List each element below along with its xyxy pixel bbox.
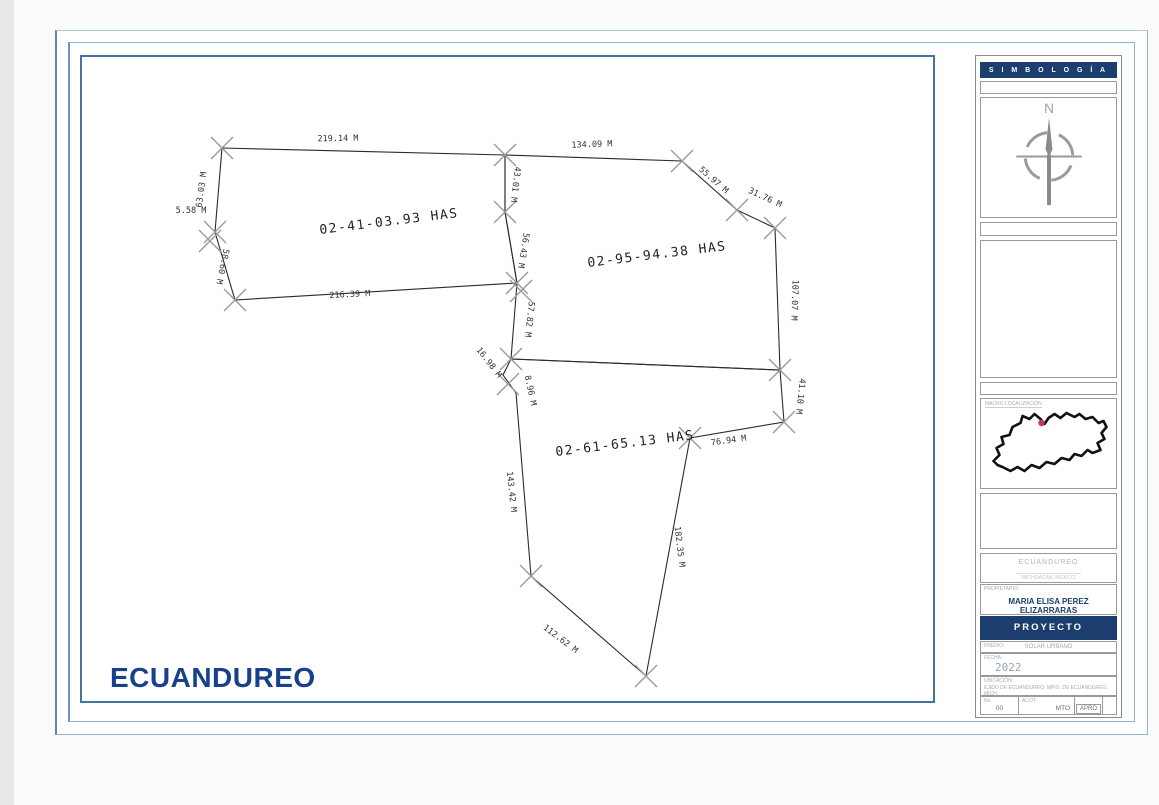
michoacan-map <box>981 407 1118 487</box>
edge-length-label: 8.96 M <box>522 375 538 407</box>
parcel-1-area-label: 02-41-03.93 HAS <box>319 206 460 238</box>
edge-length-label: 5.58 M <box>176 206 207 216</box>
year-value: 2022 <box>995 661 1116 674</box>
edge-measurements: 219.14 M 63.03 M 5.58 M 58.60 M 216.39 M… <box>176 134 807 656</box>
north-arrow-icon: N <box>1003 98 1095 215</box>
sidebar-spacer-row <box>980 222 1117 236</box>
parcel-3-area-label: 02-61-65.13 HAS <box>555 428 696 460</box>
edge-length-label: 107.07 M <box>788 279 799 320</box>
cell-approval-value: APRO <box>1076 704 1101 714</box>
cell-number-value: 00 <box>981 705 1018 712</box>
cell-units-value: MTO <box>1019 705 1074 712</box>
revision-cells-row: No. 00 ACOT. MTO APRO <box>980 696 1117 715</box>
north-letter: N <box>1043 100 1053 116</box>
macro-location-panel: MACRO LOCALIZACIÓN <box>980 398 1117 489</box>
project-band: PROYECTO <box>980 616 1117 640</box>
owner-name: MARIA ELISA PEREZ ELIZARRARAS <box>981 597 1116 615</box>
edge-length-label: 56.43 M <box>515 232 530 269</box>
sidebar-empty-panel <box>980 493 1117 549</box>
edge-length-label: 112.62 M <box>541 623 580 656</box>
year-row: FECHA: 2022 <box>980 653 1117 676</box>
predio-label: PREDIO: <box>984 643 1005 649</box>
organization-subtitle: MICHOACÁN, MÉXICO <box>1016 573 1081 581</box>
owner-panel: PROPIETARIO: MARIA ELISA PEREZ ELIZARRAR… <box>980 584 1117 615</box>
sidebar-spacer-row <box>980 382 1117 395</box>
parcel-2-area-label: 02-95-94.38 HAS <box>587 239 728 271</box>
simbologia-header: S I M B O L O G Í A <box>980 62 1117 78</box>
edge-length-label: 143.42 M <box>504 471 518 513</box>
edge-length-label: 58.60 M <box>213 248 230 285</box>
organization-panel: ECUANDUREO MICHOACÁN, MÉXICO <box>980 553 1117 583</box>
edge-length-label: 219.14 M <box>317 134 358 145</box>
edge-length-label: 182.35 M <box>672 526 687 568</box>
cell-units: ACOT. MTO <box>1019 697 1075 714</box>
sidebar-empty-panel <box>980 240 1117 378</box>
location-marker-dot <box>1038 420 1044 426</box>
edge-length-label: 16.98 M <box>474 346 504 380</box>
north-arrow-panel: N <box>980 97 1117 218</box>
organization-name: ECUANDUREO <box>981 559 1116 566</box>
edge-length-label: 55.97 M <box>697 165 731 196</box>
edge-length-label: 134.09 M <box>571 139 612 150</box>
predio-row: PREDIO: SOLAR URBANO <box>980 641 1117 653</box>
cell-units-label: ACOT. <box>1022 698 1037 704</box>
year-label: FECHA: <box>984 655 1002 661</box>
map-caption: MACRO LOCALIZACIÓN <box>985 401 1042 408</box>
page-title: ECUANDUREO <box>110 662 316 694</box>
edge-length-label: 216.39 M <box>329 289 370 301</box>
cell-number-label: No. <box>984 698 992 704</box>
cell-blank <box>1103 697 1116 714</box>
edge-length-label: 31.76 M <box>746 186 783 210</box>
vertex-markers <box>199 137 795 687</box>
cell-approval: APRO <box>1075 697 1103 714</box>
edge-length-label: 41.10 M <box>793 378 807 415</box>
owner-label: PROPIETARIO: <box>984 586 1019 592</box>
edge-length-label: 43.01 M <box>508 166 522 203</box>
titleblock-sidebar: S I M B O L O G Í A N MACRO LOCALIZACIÓN… <box>975 55 1122 718</box>
cell-number: No. 00 <box>981 697 1019 714</box>
edge-length-label: 57.82 M <box>522 301 536 338</box>
sidebar-spacer-row <box>980 81 1117 94</box>
parcel-outlines <box>215 148 784 676</box>
edge-length-label: 63.03 M <box>195 171 210 208</box>
edge-length-label: 76.94 M <box>710 434 747 449</box>
location-row: UBICACIÓN: EJIDO DE ECUANDUREO, MPIO. DE… <box>980 676 1117 696</box>
location-label: UBICACIÓN: <box>984 678 1013 684</box>
